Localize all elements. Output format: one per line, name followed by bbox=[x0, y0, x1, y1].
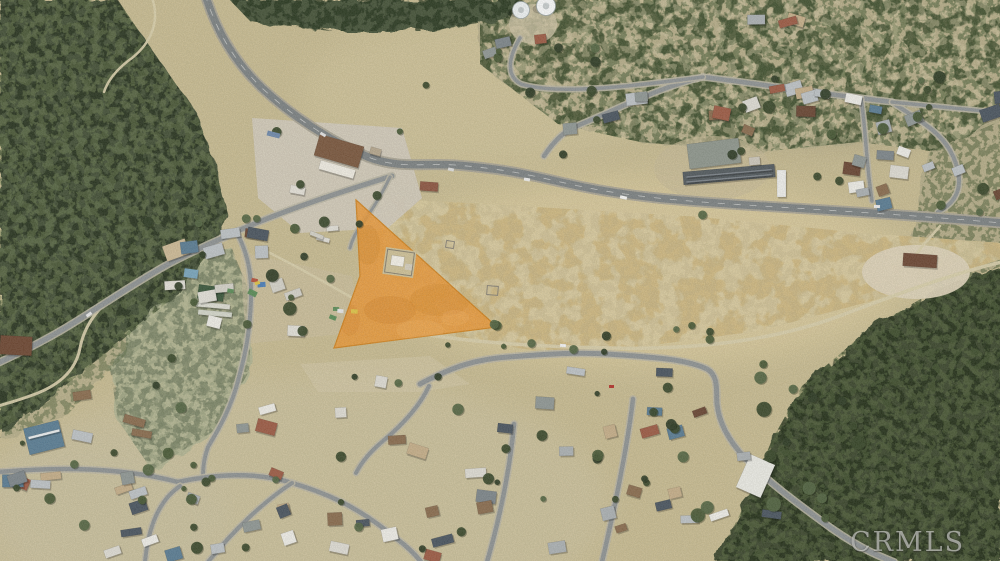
aerial-listing-photo: CRMLS bbox=[0, 0, 1000, 561]
aerial-photo-canvas bbox=[0, 0, 1000, 561]
grain-overlay bbox=[0, 0, 1000, 561]
